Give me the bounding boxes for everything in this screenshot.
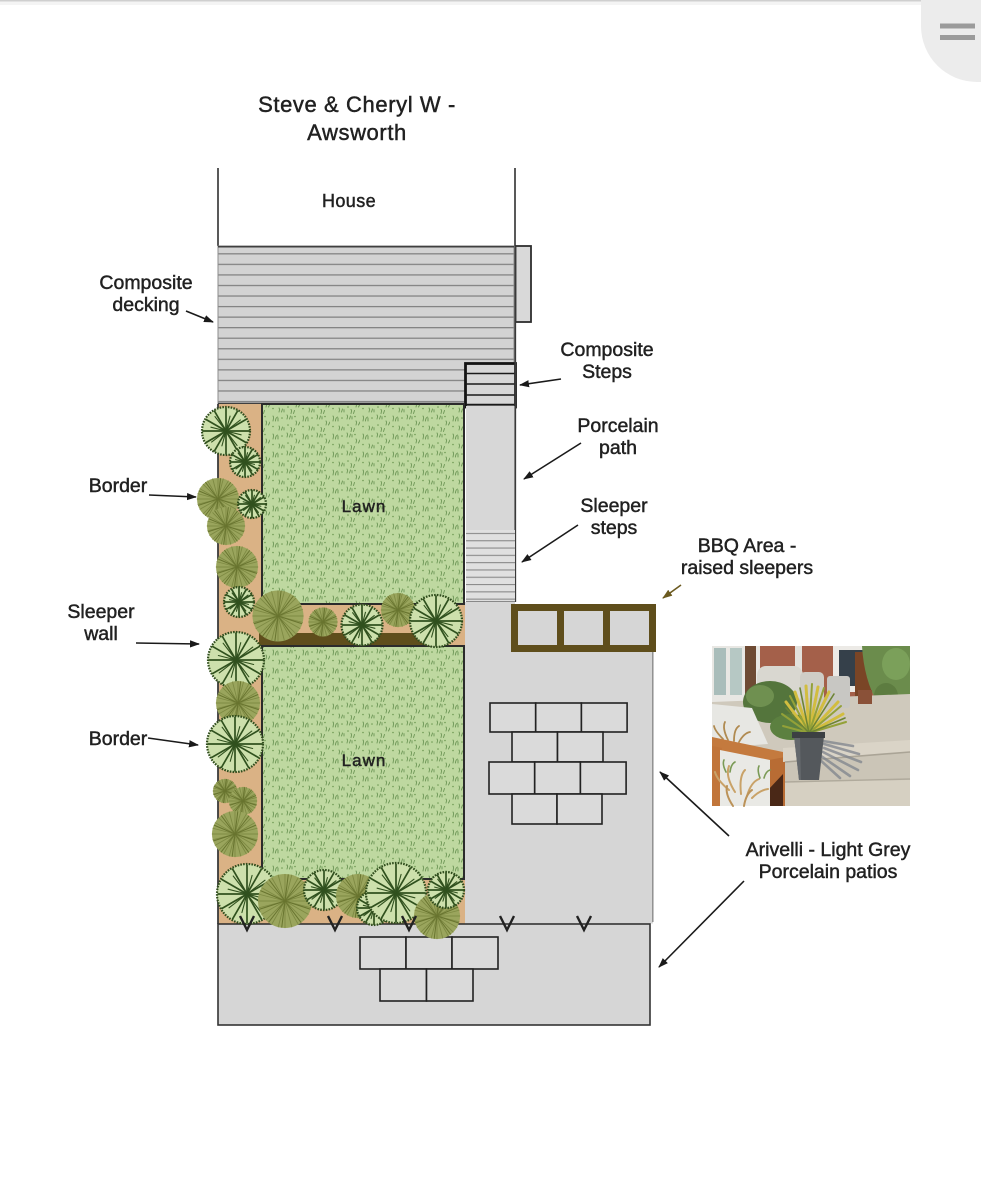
svg-text:path: path: [599, 437, 637, 459]
svg-text:Lawn: Lawn: [342, 497, 387, 516]
svg-text:Porcelain: Porcelain: [577, 415, 658, 437]
svg-text:Awsworth: Awsworth: [307, 120, 407, 145]
svg-text:Sleeper: Sleeper: [67, 601, 135, 623]
svg-text:decking: decking: [112, 294, 179, 316]
svg-text:Border: Border: [89, 728, 148, 750]
svg-text:BBQ Area -: BBQ Area -: [698, 535, 797, 557]
svg-text:Porcelain patios: Porcelain patios: [759, 861, 898, 883]
svg-text:Steve & Cheryl W -: Steve & Cheryl W -: [258, 92, 456, 117]
svg-text:Arivelli - Light Grey: Arivelli - Light Grey: [746, 839, 911, 861]
svg-text:Composite: Composite: [560, 339, 653, 361]
svg-text:Border: Border: [89, 475, 148, 497]
svg-text:Sleeper: Sleeper: [580, 495, 648, 517]
svg-text:wall: wall: [83, 623, 118, 645]
svg-text:steps: steps: [591, 517, 638, 539]
svg-text:Lawn: Lawn: [342, 751, 387, 770]
svg-text:Steps: Steps: [582, 361, 632, 383]
svg-text:Composite: Composite: [99, 272, 192, 294]
svg-text:raised sleepers: raised sleepers: [681, 557, 813, 579]
svg-text:House: House: [322, 191, 376, 211]
